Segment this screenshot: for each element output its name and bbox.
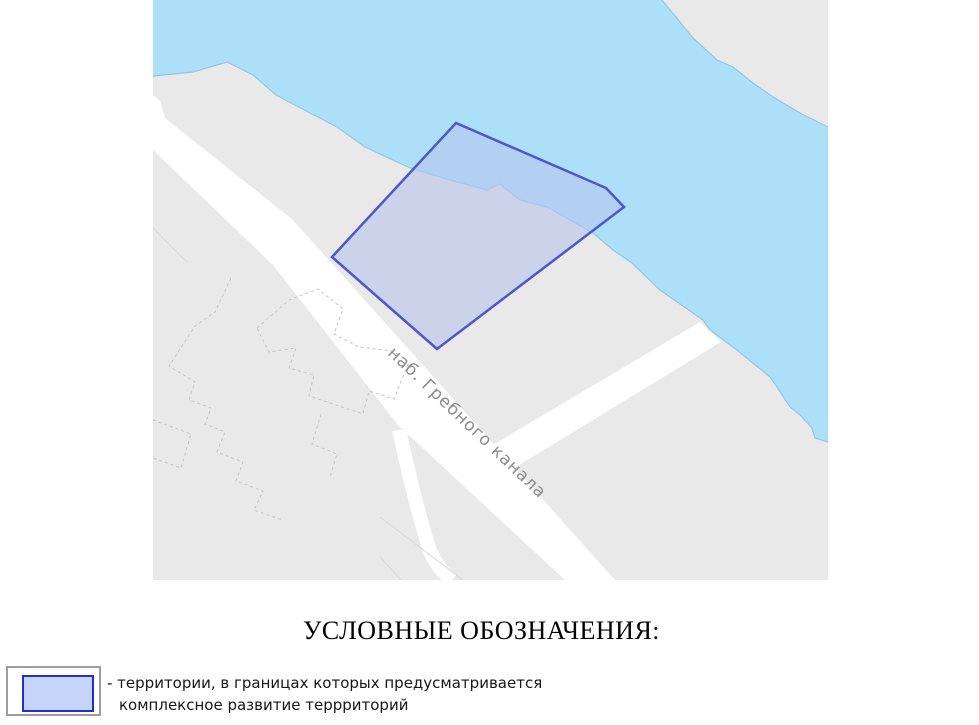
legend-swatch: [22, 675, 94, 712]
legend-heading: УСЛОВНЫЕ ОБОЗНАЧЕНИЯ:: [303, 616, 660, 646]
plan-map-canvas: наб. Гребного канала: [153, 0, 828, 580]
legend-item: - территории, в границах которых предусм…: [0, 660, 979, 725]
legend-item-label-line1: - территории, в границах которых предусм…: [107, 672, 542, 694]
legend-swatch-outer: [6, 666, 101, 716]
legend-item-label: - территории, в границах которых предусм…: [107, 672, 542, 716]
plan-map: наб. Гребного канала: [153, 0, 828, 580]
legend-item-label-line2: комплексное развитие террриторий: [107, 694, 542, 716]
document-page: { "map": { "street_label": "наб. Гребног…: [0, 0, 979, 725]
